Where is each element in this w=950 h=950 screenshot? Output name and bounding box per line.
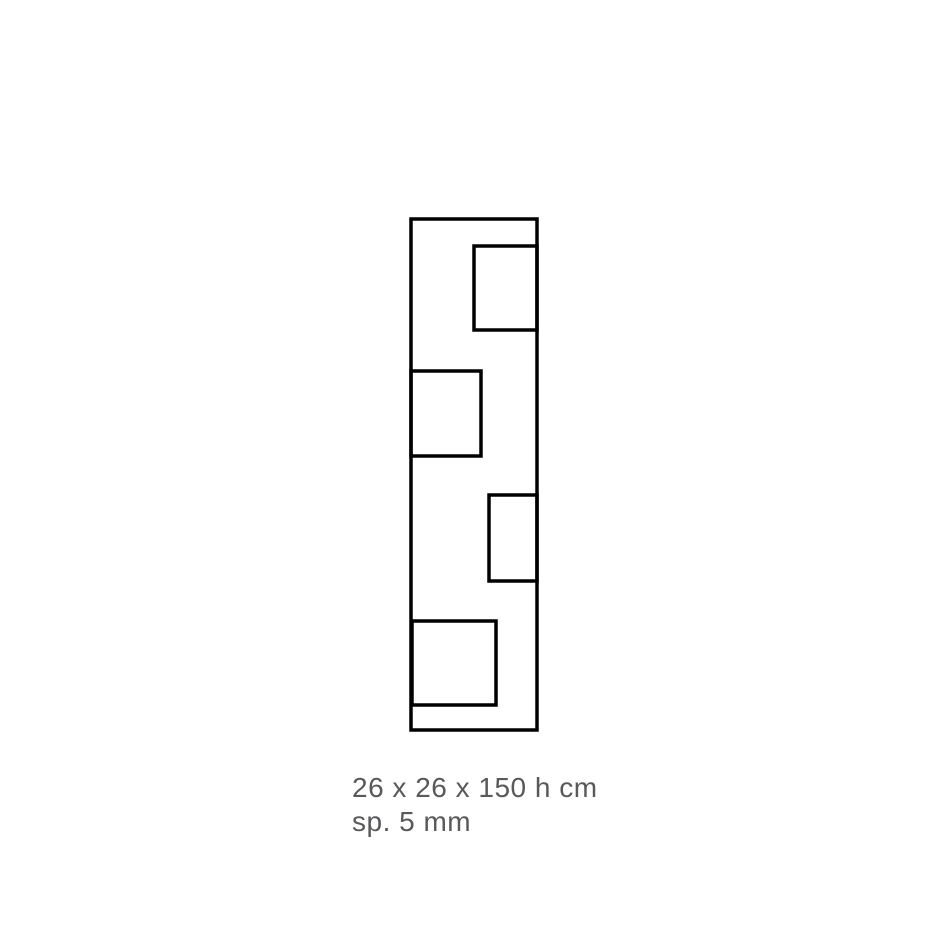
material-thickness-text: sp. 5 mm [352, 805, 598, 839]
opening-1 [474, 246, 537, 330]
product-dimension-diagram: 26 x 26 x 150 h cm sp. 5 mm [0, 0, 950, 950]
opening-3 [489, 495, 537, 581]
dimensions-caption: 26 x 26 x 150 h cm sp. 5 mm [352, 771, 598, 839]
opening-2 [411, 371, 481, 456]
opening-4 [412, 621, 496, 705]
dimensions-text: 26 x 26 x 150 h cm [352, 771, 598, 805]
